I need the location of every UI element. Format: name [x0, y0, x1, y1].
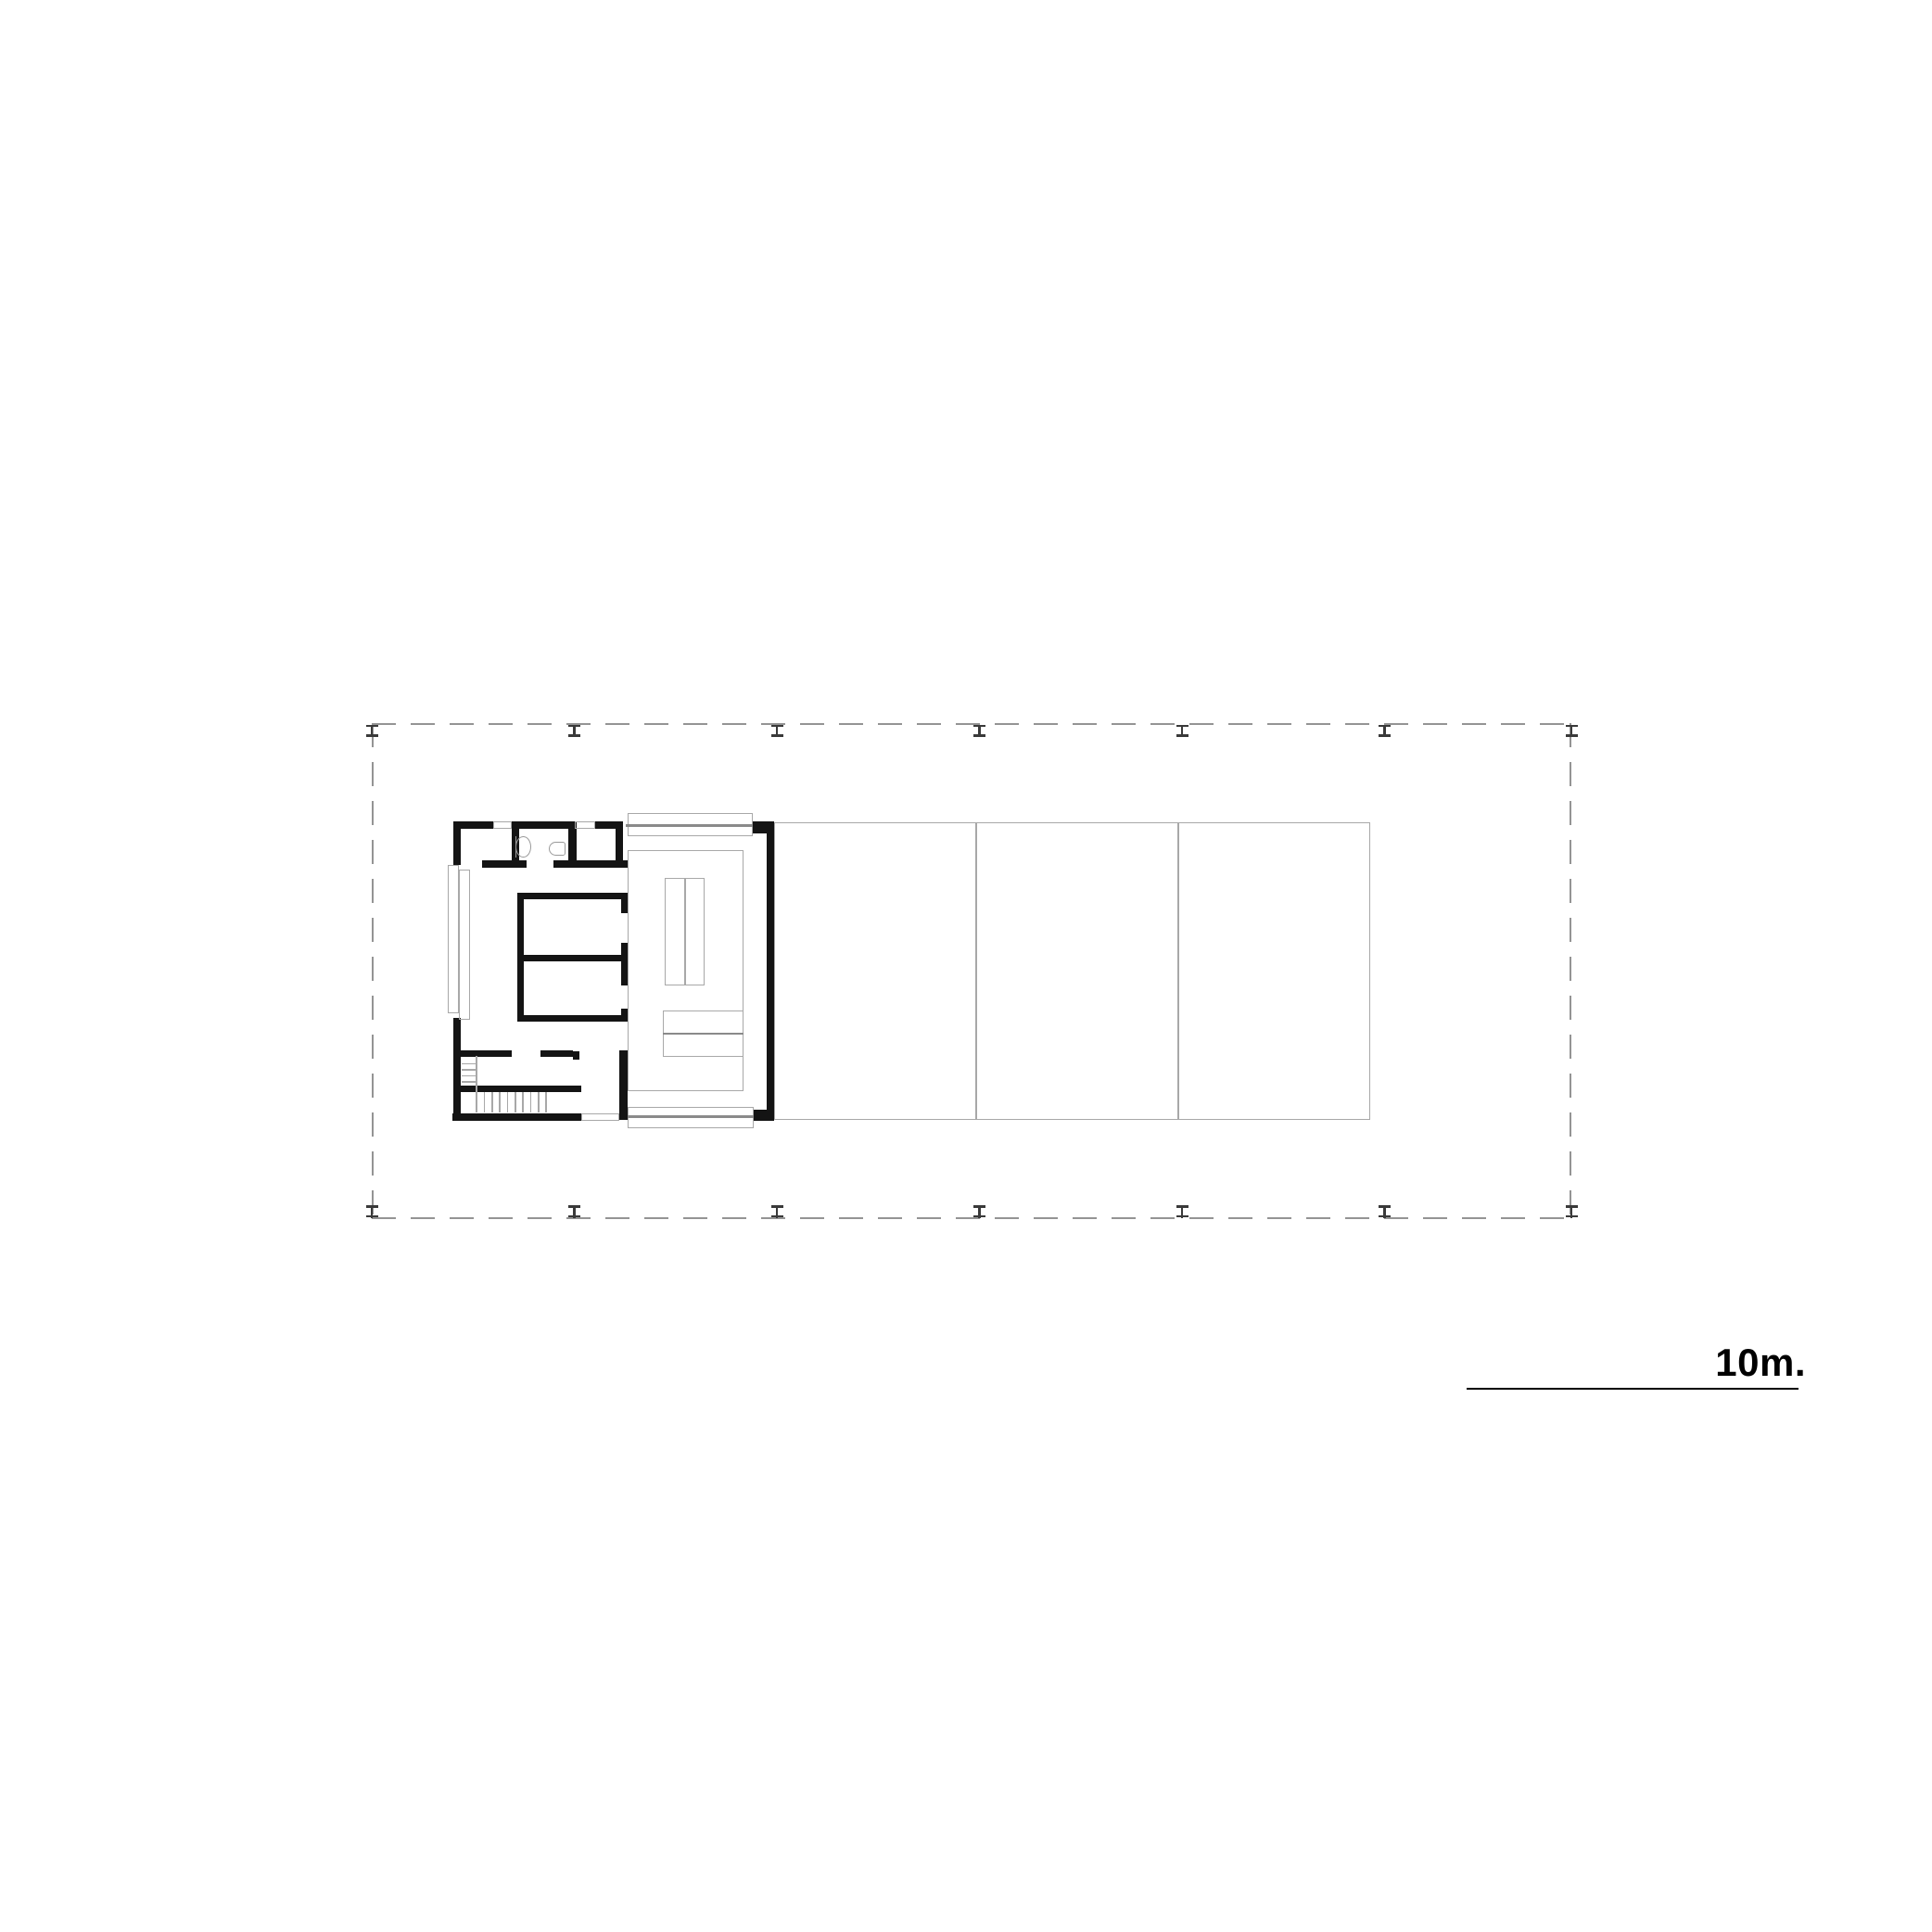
sliding-door-track-top	[626, 824, 753, 827]
tick-bar-bottom	[973, 1215, 985, 1218]
wall-bedroom-middle-stub	[621, 943, 628, 986]
wall-bottom	[452, 1113, 580, 1121]
wall-stairhall-jamb	[573, 1051, 579, 1060]
boundary-tick-top-5	[1176, 725, 1188, 738]
stair-tread-lower-5	[515, 1092, 516, 1112]
wall-bedroom-bottom-stub	[621, 1009, 628, 1022]
tick-bar-bottom	[1379, 734, 1391, 737]
tick-bar-bottom	[568, 734, 580, 737]
terrace-outline	[774, 822, 1370, 1121]
terrace-divider-1	[975, 822, 977, 1121]
stair-tread-lower-9	[545, 1092, 547, 1112]
tick-bar-bottom	[366, 734, 378, 737]
boundary-tick-bottom-1	[366, 1205, 378, 1218]
entry-door-threshold	[581, 1113, 620, 1121]
stair-tread-upper-1	[462, 1063, 476, 1065]
stair-tread-lower-6	[522, 1092, 524, 1112]
wall-stairhall-lower	[461, 1086, 581, 1092]
boundary-tick-top-4	[973, 725, 985, 738]
stair-tread-lower-3	[499, 1092, 501, 1112]
stair-tread-upper-4	[462, 1081, 476, 1083]
tick-bar-bottom	[568, 1215, 580, 1218]
tick-bar-bottom	[1566, 734, 1578, 737]
wall-left-lower	[453, 1018, 461, 1121]
boundary-tick-bottom-5	[1176, 1205, 1188, 1218]
tick-bar-bottom	[1566, 1215, 1578, 1218]
wall-right	[767, 821, 774, 1121]
scale-bar-line	[1467, 1388, 1799, 1390]
wall-stairhall-upper-1	[461, 1050, 512, 1057]
sliding-door-track-bottom	[628, 1115, 755, 1118]
stair-tread-lower-2	[491, 1092, 493, 1112]
tick-bar-bottom	[366, 1215, 378, 1218]
boundary-tick-bottom-3	[771, 1205, 783, 1218]
stair-tread-lower-7	[530, 1092, 532, 1112]
window-gap-top-1	[493, 821, 512, 829]
tick-bar-bottom	[1176, 734, 1188, 737]
terrace-divider-2	[1177, 822, 1179, 1121]
tick-bar-bottom	[1176, 1215, 1188, 1218]
tick-bar-bottom	[1379, 1215, 1391, 1218]
toilet-tank-line	[515, 836, 517, 858]
tick-bar-bottom	[771, 734, 783, 737]
boundary-tick-top-1	[366, 725, 378, 738]
boundary-tick-bottom-6	[1379, 1205, 1391, 1218]
wall-storage-right	[616, 821, 624, 864]
wall-toprooms-bottom-2	[553, 860, 628, 868]
wall-bedroom-top	[517, 893, 627, 899]
wall-bedroom-top-stub	[621, 893, 628, 913]
stair-tread-lower-4	[507, 1092, 509, 1112]
stair-tread-upper-3	[462, 1075, 476, 1077]
wall-left-upper	[453, 821, 461, 866]
boundary-tick-bottom-2	[568, 1205, 580, 1218]
kitchen-counter-divider	[663, 1033, 744, 1035]
tick-bar-bottom	[771, 1215, 783, 1218]
dining-table-divider	[684, 878, 686, 986]
wall-bedroom-bottom	[517, 1015, 627, 1022]
wall-toprooms-bottom-1	[482, 860, 527, 868]
washbasin	[549, 842, 566, 856]
wall-top-segment-2	[512, 821, 575, 829]
window-gap-top-2	[575, 821, 595, 829]
scale-bar-label: 10m.	[1622, 1341, 1806, 1385]
toilet-bowl	[515, 836, 531, 858]
boundary-edge-bottom	[372, 1217, 1571, 1219]
boundary-tick-bottom-4	[973, 1205, 985, 1218]
boundary-tick-top-3	[771, 725, 783, 738]
stair-tread-lower-1	[484, 1092, 486, 1112]
boundary-edge-top	[372, 723, 1571, 725]
window-sliding-panel-2	[459, 870, 470, 1020]
tick-bar-bottom	[973, 734, 985, 737]
wall-stairhall-upper-2	[540, 1050, 573, 1057]
boundary-tick-top-6	[1379, 725, 1391, 738]
stair-tread-upper-2	[462, 1069, 476, 1071]
boundary-edge-left	[372, 723, 374, 1219]
boundary-tick-top-2	[568, 725, 580, 738]
stair-tread-lower-8	[538, 1092, 540, 1112]
window-sliding-panel-1	[448, 865, 459, 1013]
boundary-tick-top-7	[1566, 725, 1578, 738]
stair-boundary-line	[476, 1056, 477, 1112]
boundary-tick-bottom-7	[1566, 1205, 1578, 1218]
wall-corner-bottom-right	[753, 1110, 774, 1121]
wall-stairhall-right	[619, 1050, 627, 1121]
wall-bedroom-middle	[517, 955, 627, 961]
boundary-edge-right	[1570, 723, 1571, 1219]
floor-plan-canvas: 10m.	[0, 0, 1932, 1932]
